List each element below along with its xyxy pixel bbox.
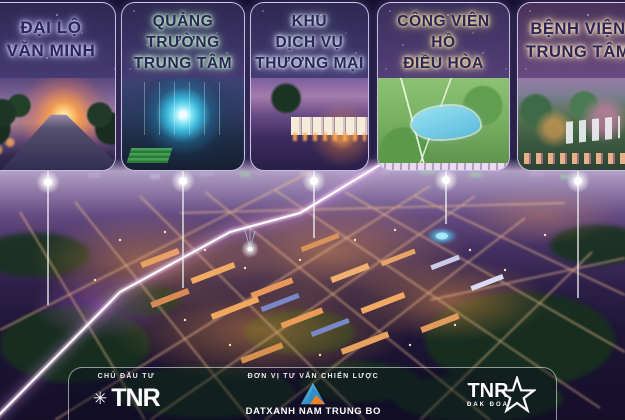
card-scene-plaza-fountain bbox=[122, 78, 244, 170]
project-logo-block: TNR ĐAK ĐOA bbox=[467, 371, 536, 418]
footer-panel: CHỦ ĐẦU TƯ ✳ TNR ĐƠN VỊ TƯ VẤN CHIẾN LƯỢ… bbox=[68, 367, 557, 420]
card-scene-lake-park-plan bbox=[378, 78, 509, 170]
callout-card-benh-vien-trung-tam: BỆNH VIỆN TRUNG TÂM bbox=[517, 2, 625, 171]
callout-card-quang-truong-trung-tam: QUẢNG TRƯỜNG TRUNG TÂM bbox=[121, 2, 245, 171]
callout-line-text: HỒ bbox=[431, 32, 455, 53]
project-logo-subtitle: ĐAK ĐOA bbox=[467, 402, 509, 408]
callout-line-text: DỊCH VỤ bbox=[276, 32, 344, 53]
callout-line-text: ĐIỀU HÒA bbox=[403, 53, 484, 74]
consultant-logo-text: DATXANH NAM TRUNG BO bbox=[246, 406, 381, 417]
tnr-asterisk-icon: ✳ bbox=[93, 390, 107, 407]
callout-line-text: TRUNG TÂM bbox=[134, 53, 232, 74]
consultant-label: ĐƠN VỊ TƯ VẤN CHIẾN LƯỢC bbox=[248, 373, 379, 380]
tnr-logo: ✳ TNR bbox=[93, 386, 160, 411]
callout-line-text: VĂN MINH bbox=[7, 39, 96, 62]
callout-line-text: QUẢNG bbox=[153, 11, 214, 32]
card-scene-boulevard-sunset bbox=[0, 78, 115, 170]
project-logo-text: TNR ĐAK ĐOA bbox=[467, 381, 509, 408]
poster: ĐẠI LỘ VĂN MINH QUẢNG TRƯỜNG TRUNG TÂM K… bbox=[0, 0, 625, 420]
datxanh-triangle-icon bbox=[300, 382, 326, 405]
developer-label: CHỦ ĐẦU TƯ bbox=[98, 373, 155, 380]
callout-title: BỆNH VIỆN TRUNG TÂM bbox=[518, 3, 625, 64]
fountain-plaza bbox=[426, 227, 458, 245]
developer-block: CHỦ ĐẦU TƯ ✳ TNR bbox=[93, 371, 160, 418]
callout-line-text: BỆNH VIỆN bbox=[530, 18, 625, 41]
card-scene-hospital-campus bbox=[518, 78, 625, 170]
callout-line-text: CÔNG VIÊN bbox=[397, 11, 489, 32]
callout-line-text: TRUNG TÂM bbox=[526, 41, 625, 64]
callout-card-dai-lo-van-minh: ĐẠI LỘ VĂN MINH bbox=[0, 2, 116, 171]
callout-line-text: THƯƠNG MẠI bbox=[255, 53, 364, 74]
project-logo-name: TNR bbox=[467, 381, 508, 401]
tnr-logo-text: TNR bbox=[111, 386, 159, 411]
card-scene-shophouse-street bbox=[251, 78, 368, 170]
callout-card-khu-dich-vu-thuong-mai: KHU DỊCH VỤ THƯƠNG MẠI bbox=[250, 2, 369, 171]
callout-card-cong-vien-ho-dieu-hoa: CÔNG VIÊN HỒ ĐIỀU HÒA bbox=[377, 2, 510, 171]
callout-line-text: TRƯỜNG bbox=[146, 32, 220, 53]
callout-title: CÔNG VIÊN HỒ ĐIỀU HÒA bbox=[378, 3, 509, 74]
callout-title: ĐẠI LỘ VĂN MINH bbox=[0, 3, 115, 62]
tnr-star-logo: TNR ĐAK ĐOA bbox=[467, 376, 536, 413]
callout-line-text: KHU bbox=[292, 11, 327, 32]
callout-connector-4 bbox=[434, 168, 458, 224]
callout-title: KHU DỊCH VỤ THƯƠNG MẠI bbox=[251, 3, 368, 74]
consultant-block: ĐƠN VỊ TƯ VẤN CHIẾN LƯỢC DATXANH NAM TRU… bbox=[246, 371, 381, 418]
callout-line-text: ĐẠI LỘ bbox=[20, 16, 81, 39]
callout-title: QUẢNG TRƯỜNG TRUNG TÂM bbox=[122, 3, 244, 74]
